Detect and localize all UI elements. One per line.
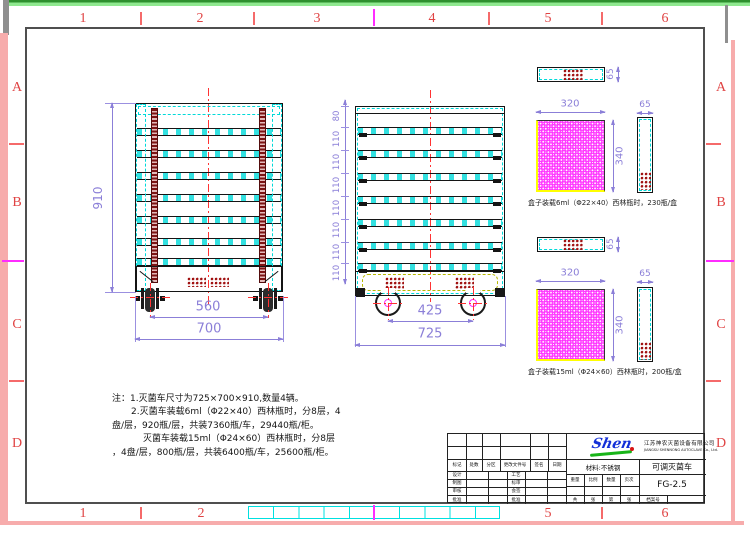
dim-700: 700 xyxy=(197,322,222,337)
extension-line xyxy=(355,296,356,347)
tb-line xyxy=(566,474,706,475)
tb-rev-label: 更改文件号 xyxy=(504,462,527,468)
tb-rev-label: 分区 xyxy=(487,462,496,468)
tb-qty-label: 重量 xyxy=(571,477,580,483)
chain-tick xyxy=(341,173,349,174)
zone-left-B: B xyxy=(12,195,21,211)
dim-320: 320 xyxy=(560,268,579,279)
tb-sign-label: 标审 xyxy=(512,480,521,486)
shelf-bracket xyxy=(493,179,501,183)
tb-rev-label: 标记 xyxy=(453,462,462,468)
zone-tick xyxy=(488,12,490,25)
top-edge-green-strip xyxy=(9,0,750,6)
cad-drawing-sheet: 1 2 3 4 5 6 1 2 5 6 A B C D A B C D xyxy=(0,0,750,534)
front-right-rail xyxy=(272,104,282,291)
shelf-bracket xyxy=(359,133,367,137)
tb-line xyxy=(500,434,501,471)
shelf-line xyxy=(358,150,502,158)
shelf-line xyxy=(358,219,502,227)
zone-top-4: 4 xyxy=(429,11,436,27)
tb-line xyxy=(566,495,706,496)
wheel-centerline xyxy=(150,283,151,318)
vial-dots xyxy=(563,69,583,80)
shelf-bracket xyxy=(493,202,501,206)
dim-340: 340 xyxy=(615,315,626,334)
dim-110: 110 xyxy=(332,200,342,216)
shelf-bracket xyxy=(359,225,367,229)
tray-caption-15ml: 盒子装载15ml（Φ24×60）西林瓶时，200瓶/盒 xyxy=(528,367,682,377)
zone-top-3: 3 xyxy=(314,11,321,27)
zone-right-B: B xyxy=(716,195,725,211)
zone-bottom-5: 5 xyxy=(545,506,552,522)
tb-line xyxy=(466,434,467,471)
company-name-cn: 江苏神农灭菌设备有限公司 xyxy=(644,439,715,447)
tb-line xyxy=(507,471,508,504)
tb-line xyxy=(639,459,640,504)
tb-line xyxy=(548,434,549,471)
dim-line-560 xyxy=(150,317,268,318)
scale-bar-center-mark xyxy=(373,505,375,520)
tb-qty-label: 数量 xyxy=(607,477,616,483)
vial-dots xyxy=(640,172,651,190)
dim-line-700 xyxy=(135,339,283,340)
tray-top-view xyxy=(536,120,605,192)
zone-center-tick xyxy=(2,260,24,262)
left-edge-gray-corner xyxy=(3,0,9,35)
dim-110: 110 xyxy=(332,244,342,260)
zone-tick xyxy=(601,12,603,25)
dim-425: 425 xyxy=(418,304,443,319)
note-line: 灭菌车装载15ml（Φ24×60）西林瓶时，分8层 xyxy=(143,431,335,444)
tb-rev-label: 处数 xyxy=(470,462,479,468)
note-line: ，4盘/层，800瓶/层，共装6400瓶/车，25600瓶/柜。 xyxy=(112,445,334,458)
front-left-rail xyxy=(136,104,146,291)
zone-tick xyxy=(706,380,721,382)
chain-tick xyxy=(341,196,349,197)
tb-line xyxy=(584,474,585,504)
tb-sign-label: 制图 xyxy=(453,480,462,486)
dim-line-65 xyxy=(618,237,619,252)
note-line: 注：1.灭菌车尺寸为725×700×910,数量4辆。 xyxy=(112,391,304,404)
tb-sign-label: 审核 xyxy=(453,488,462,494)
extension-line xyxy=(135,296,136,342)
tray-caption-6ml: 盒子装载6ml（Φ22×40）西林瓶时，230瓶/盒 xyxy=(528,198,677,208)
zone-tick xyxy=(140,507,142,519)
tb-sheet-label: 张 xyxy=(627,497,632,503)
zone-tick xyxy=(9,143,24,145)
shelf-bracket xyxy=(359,179,367,183)
wheel-centerline xyxy=(248,297,288,298)
wheel-centerline xyxy=(458,303,488,304)
tb-line xyxy=(667,495,668,504)
zone-bottom-1: 1 xyxy=(80,506,87,522)
logo-accent xyxy=(630,447,634,451)
title-block: 标记 处数 分区 更改文件号 签名 日期 设计 制图 审核 批准 工艺 标审 会… xyxy=(447,433,705,503)
zone-tick xyxy=(706,143,721,145)
zone-right-C: C xyxy=(716,317,725,333)
tb-sheet-label: 共 xyxy=(573,497,578,503)
dim-65: 65 xyxy=(639,100,650,110)
chain-tick xyxy=(341,150,349,151)
dim-80: 80 xyxy=(332,111,342,122)
zone-left-A: A xyxy=(12,80,22,96)
tb-qty-label: 比例 xyxy=(589,477,598,483)
dim-110: 110 xyxy=(332,154,342,170)
dim-line-725 xyxy=(355,345,505,346)
note-line: 盘/层，920瓶/层，共装7360瓶/车，29440瓶/柜。 xyxy=(112,418,319,431)
wheel-centerline xyxy=(268,283,269,318)
zone-tick xyxy=(601,507,603,519)
caster-wheel-front xyxy=(156,288,159,309)
left-edge-pink-strip xyxy=(0,33,8,522)
vial-dots xyxy=(563,239,583,250)
shelf-line xyxy=(358,196,502,204)
zone-left-C: C xyxy=(12,317,21,333)
tb-qty-label: 页次 xyxy=(625,477,634,483)
tray-top-view xyxy=(536,289,605,361)
caster-wheel-front xyxy=(141,288,144,309)
tb-rev-label: 签名 xyxy=(535,462,544,468)
vial-dots xyxy=(187,277,206,287)
zone-top-6: 6 xyxy=(662,11,669,27)
dim-320: 320 xyxy=(560,99,579,110)
side-foot xyxy=(355,288,365,297)
chain-tick xyxy=(341,106,349,107)
shelf-bracket xyxy=(359,156,367,160)
tb-line xyxy=(482,434,483,471)
dim-line-65v xyxy=(637,282,653,283)
extension-line xyxy=(505,296,506,347)
shelf-bracket xyxy=(493,133,501,137)
dim-line-910 xyxy=(112,103,113,292)
tb-sign-label: 批准 xyxy=(512,497,521,503)
tb-drawing-no: FG-2.5 xyxy=(657,480,687,490)
threaded-rod xyxy=(151,108,158,283)
dim-910: 910 xyxy=(91,187,105,210)
tb-line xyxy=(466,471,467,504)
dim-340: 340 xyxy=(615,146,626,165)
zone-bottom-6: 6 xyxy=(662,506,669,522)
shelf-bracket xyxy=(359,248,367,252)
tb-sign-label: 会签 xyxy=(512,488,521,494)
dim-110: 110 xyxy=(332,131,342,147)
tb-line xyxy=(530,434,531,471)
tb-line xyxy=(488,471,489,504)
chain-tick xyxy=(341,242,349,243)
shelf-bracket xyxy=(359,202,367,206)
dim-560: 560 xyxy=(196,300,221,315)
zone-center-tick xyxy=(706,260,734,262)
bottom-edge-pink-strip xyxy=(0,521,744,525)
dim-line-65v xyxy=(637,113,653,114)
dim-65: 65 xyxy=(606,238,616,249)
zone-left-D: D xyxy=(12,436,22,452)
shelf-line xyxy=(358,173,502,181)
dim-65: 65 xyxy=(639,269,650,279)
dim-110: 110 xyxy=(332,222,342,238)
dim-65: 65 xyxy=(606,68,616,79)
side-bottom-line xyxy=(355,271,505,272)
right-edge-gray-corner xyxy=(725,5,728,43)
chain-tick xyxy=(341,263,349,264)
note-line: 2.灭菌车装载6ml（Φ22×40）西林瓶时，分8层，4 xyxy=(131,404,341,417)
tb-sheet-label: 张 xyxy=(591,497,596,503)
shelf-bracket xyxy=(493,225,501,229)
chain-tick xyxy=(341,219,349,220)
caster-wheel-front xyxy=(259,288,262,309)
shelf-line xyxy=(358,263,502,271)
zone-center-tick xyxy=(373,9,375,26)
tb-sign-label: 批准 xyxy=(453,497,462,503)
extension-line xyxy=(283,296,284,342)
zone-tick xyxy=(253,12,255,25)
side-top-rail xyxy=(355,113,505,114)
dim-110: 110 xyxy=(332,265,342,281)
zone-tick xyxy=(140,12,142,25)
tb-material: 材料:不锈钢 xyxy=(586,462,621,472)
tb-rev-label: 日期 xyxy=(553,462,562,468)
side-foot xyxy=(495,288,505,297)
zone-right-A: A xyxy=(716,80,726,96)
shelf-line xyxy=(358,127,502,135)
tb-line xyxy=(566,434,567,504)
tb-sheet-label: 第 xyxy=(609,497,614,503)
right-edge-pink-strip xyxy=(731,40,735,524)
tb-line xyxy=(620,474,621,504)
vial-dots xyxy=(210,277,229,287)
tb-archive-label: 档案号 xyxy=(646,497,660,503)
dim-110: 110 xyxy=(332,177,342,193)
dim-line-320 xyxy=(536,281,605,282)
shelf-bracket xyxy=(493,156,501,160)
zone-bottom-2: 2 xyxy=(198,506,205,522)
company-name-en: JIANGSU SHENNONG AUTOCLAVE Co., Ltd. xyxy=(644,448,718,452)
tb-line xyxy=(547,471,548,504)
wheel-centerline xyxy=(130,297,170,298)
zone-top-1: 1 xyxy=(80,11,87,27)
zone-tick xyxy=(9,380,24,382)
threaded-rod xyxy=(259,108,266,283)
vial-dots xyxy=(640,342,651,360)
dim-line-320 xyxy=(536,112,605,113)
dim-725: 725 xyxy=(418,327,443,342)
tb-line xyxy=(602,474,603,504)
tb-sign-label: 设计 xyxy=(453,472,462,478)
tb-product-name: 可调灭菌车 xyxy=(652,462,692,473)
zone-top-2: 2 xyxy=(197,11,204,27)
tb-line xyxy=(566,459,706,460)
shelf-bracket xyxy=(493,248,501,252)
caster-wheel-front xyxy=(274,288,277,309)
dim-line-65 xyxy=(618,67,619,82)
tb-sign-label: 工艺 xyxy=(512,472,521,478)
zone-top-5: 5 xyxy=(545,11,552,27)
wheel-centerline xyxy=(373,303,403,304)
chain-tick xyxy=(341,127,349,128)
tb-line xyxy=(525,471,526,504)
dim-line-425 xyxy=(388,321,473,322)
shelf-line xyxy=(358,242,502,250)
